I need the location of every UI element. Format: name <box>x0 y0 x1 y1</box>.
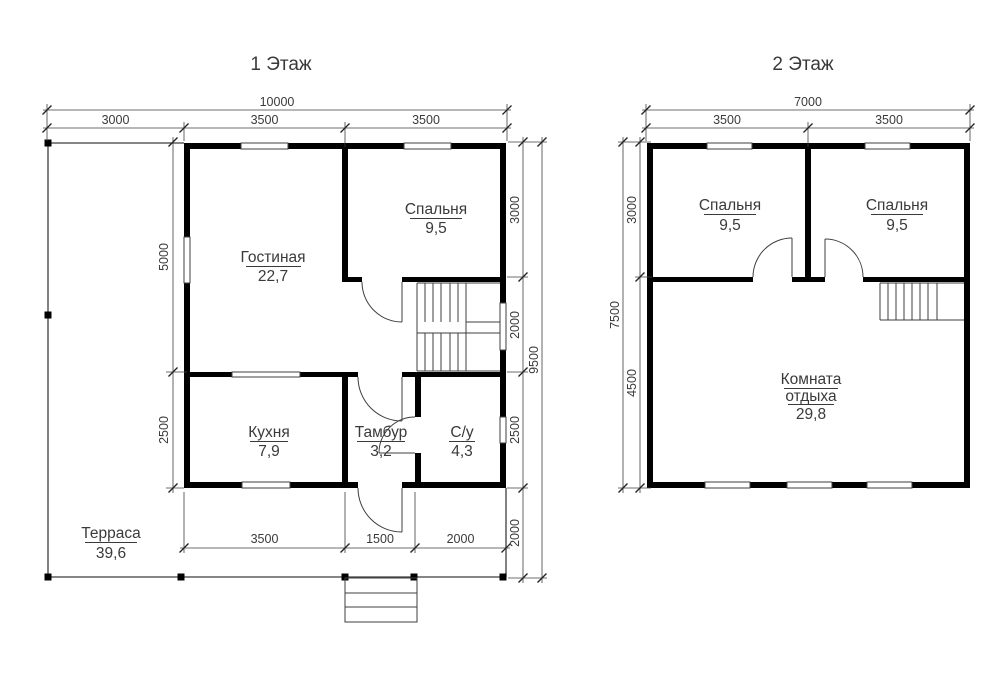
terrace-post <box>45 312 52 319</box>
room-label-bedroom: Спальня <box>405 201 467 218</box>
room-area-terrace: 39,6 <box>96 545 126 562</box>
wall-outer-left <box>184 143 190 488</box>
wall-bedrooms-lounge <box>653 277 964 282</box>
door-opening-vestibule <box>358 372 402 377</box>
dim-text: 3000 <box>102 113 130 127</box>
wall-living-bedroom <box>342 149 348 282</box>
window-living-top <box>241 143 288 149</box>
window-bathroom-right <box>500 417 506 443</box>
room-label-kitchen: Кухня <box>248 424 289 441</box>
floor2-title: 2 Этаж <box>772 54 834 75</box>
wall-outer-left <box>647 143 653 488</box>
floor2-dimensions-left: 3000 4500 7500 <box>608 137 652 493</box>
dim-text: 2500 <box>508 416 522 444</box>
window-living-left <box>184 237 190 283</box>
dim-text: 2500 <box>157 416 171 444</box>
floor1-plan: 1 Этаж <box>43 54 548 622</box>
terrace-post <box>178 574 185 581</box>
door-opening-bedroom-left <box>753 277 792 282</box>
wall-outer-top <box>647 143 970 149</box>
dim-text: 3500 <box>713 113 741 127</box>
room-area-lounge: 29,8 <box>796 406 826 423</box>
window-lounge-bottom <box>787 482 832 488</box>
staircase-floor1 <box>417 283 500 371</box>
dim-text: 1500 <box>366 532 394 546</box>
porch-steps <box>345 578 417 622</box>
window-living-kitchen <box>232 372 300 377</box>
terrace-post <box>45 574 52 581</box>
wall-kitchen-vestibule <box>342 372 348 482</box>
terrace-post <box>500 574 507 581</box>
dim-text: 4500 <box>625 369 639 397</box>
dim-text-total: 7500 <box>608 301 622 329</box>
window-kitchen-bottom <box>242 482 290 488</box>
floor-plan-drawing: 1 Этаж <box>0 0 1000 700</box>
dim-text: 3500 <box>251 532 279 546</box>
wall-outer-right <box>964 143 970 488</box>
dim-text-total: 9500 <box>527 346 541 374</box>
window-lounge-bottom <box>705 482 750 488</box>
door-arc-entrance <box>358 488 402 532</box>
floor2-dimensions-top: 7000 3500 3500 <box>642 95 975 147</box>
room-area-living: 22,7 <box>258 268 288 285</box>
dim-text: 3500 <box>251 113 279 127</box>
dim-text: 5000 <box>157 243 171 271</box>
terrace-post <box>45 140 52 147</box>
door-arc-vestibule <box>358 377 402 421</box>
room-label-bedroom-left: Спальня <box>699 197 761 214</box>
window-stair-right <box>500 303 506 350</box>
floor1-dimensions-left: 5000 2500 <box>157 137 187 493</box>
room-area-bedroom-right: 9,5 <box>886 217 908 234</box>
window-bedroom-top <box>404 143 451 149</box>
dim-text: 2000 <box>508 311 522 339</box>
dim-text-total: 7000 <box>794 95 822 109</box>
dim-text: 2000 <box>508 519 522 547</box>
dim-text: 3000 <box>508 196 522 224</box>
room-area-kitchen: 7,9 <box>258 443 280 460</box>
door-opening-bedroom <box>362 277 402 282</box>
staircase-floor2 <box>880 283 964 320</box>
window-bedroom-left-top <box>707 143 752 149</box>
door-arc-bedroom-right <box>825 239 863 277</box>
floor2-plan: 2 Этаж <box>608 54 975 493</box>
door-arc-bedroom-left <box>753 238 792 277</box>
door-arc-bedroom <box>362 282 402 322</box>
window-lounge-bottom <box>867 482 912 488</box>
door-opening-bathroom <box>415 417 421 453</box>
room-area-bathroom: 4,3 <box>451 443 473 460</box>
wall-bedrooms-divider <box>805 149 811 277</box>
door-opening-entrance <box>358 482 402 488</box>
room-label-lounge-line1: Комната <box>781 371 842 388</box>
room-label-vestibule: Тамбур <box>355 424 408 441</box>
window-bedroom-right-top <box>865 143 910 149</box>
room-area-vestibule: 3,2 <box>370 443 392 460</box>
dim-text: 3500 <box>412 113 440 127</box>
terrace-post <box>411 574 418 581</box>
room-label-terrace: Терраса <box>81 525 141 542</box>
dim-text: 3500 <box>875 113 903 127</box>
dim-text-total: 10000 <box>260 95 295 109</box>
floor1-title: 1 Этаж <box>250 54 312 75</box>
floor1-dimensions-bottom: 3500 1500 2000 <box>180 492 511 553</box>
room-area-bedroom-left: 9,5 <box>719 217 741 234</box>
room-area-bedroom: 9,5 <box>425 220 447 237</box>
door-opening-bedroom-right <box>825 277 863 282</box>
floor1-dimensions-top: 10000 3000 3500 3500 <box>43 95 512 147</box>
room-label-bathroom: С/у <box>450 424 474 441</box>
dim-text: 3000 <box>625 196 639 224</box>
room-label-lounge-line2: отдыха <box>785 388 837 405</box>
room-label-living: Гостиная <box>240 249 305 266</box>
floor1-dimensions-right: 3000 2000 2500 2000 9500 <box>507 137 547 583</box>
dim-text: 2000 <box>447 532 475 546</box>
room-label-bedroom-right: Спальня <box>866 197 928 214</box>
floor-plan-svg: 1 Этаж <box>0 0 1000 700</box>
wall-outer-bottom <box>184 482 506 488</box>
